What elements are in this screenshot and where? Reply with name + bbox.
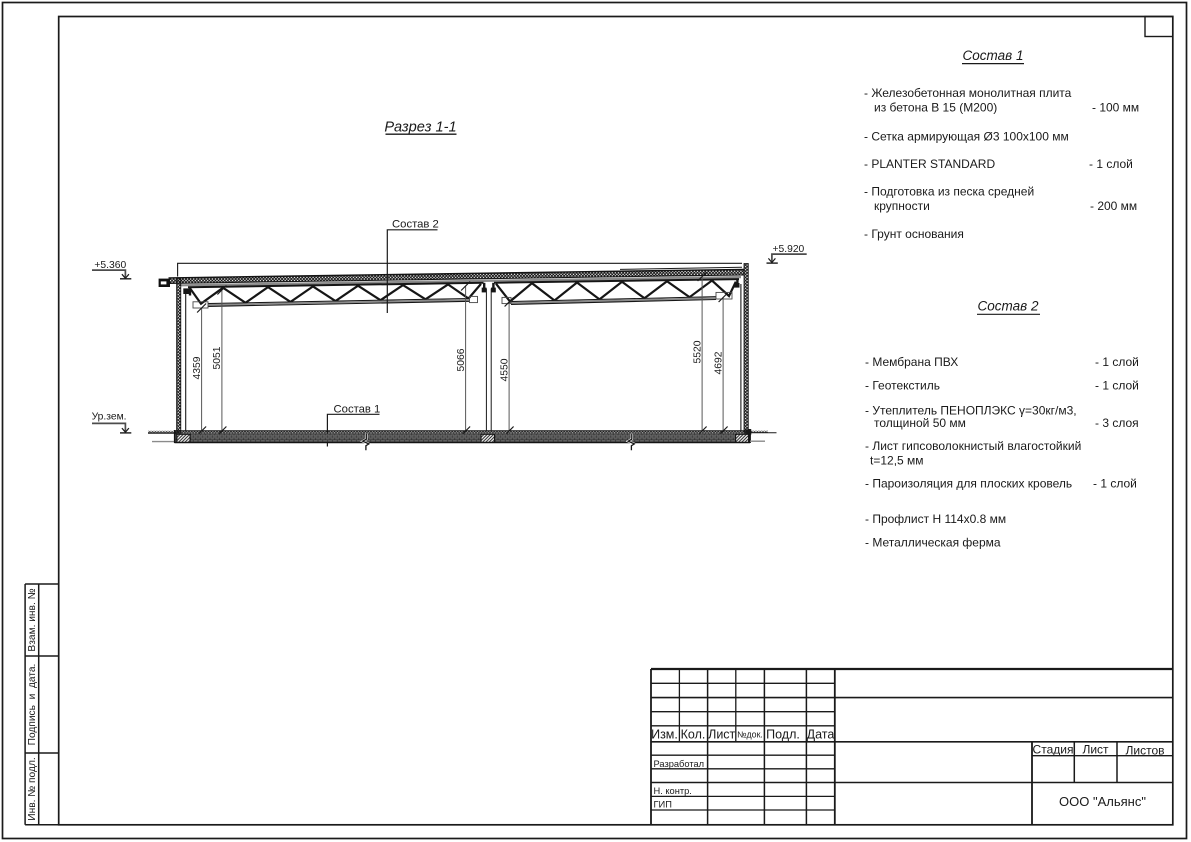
- svg-text:- Грунт основания: - Грунт основания: [864, 227, 964, 241]
- svg-text:из бетона В 15 (М200): из бетона В 15 (М200): [874, 101, 997, 115]
- svg-text:№док.: №док.: [737, 730, 763, 740]
- svg-text:- 1 слой: - 1 слой: [1093, 477, 1137, 491]
- svg-text:- PLANTER STANDARD: - PLANTER STANDARD: [864, 157, 995, 171]
- svg-text:- Геотекстиль: - Геотекстиль: [865, 379, 940, 393]
- svg-text:Подпись и дата.: Подпись и дата.: [27, 664, 38, 746]
- svg-text:+5.360: +5.360: [94, 260, 126, 271]
- svg-text:- Подготовка из песка средней: - Подготовка из песка средней: [864, 185, 1034, 199]
- svg-text:- Лист гипсоволокнистый влагос: - Лист гипсоволокнистый влагостойкий: [865, 439, 1081, 453]
- svg-text:t=12,5 мм: t=12,5 мм: [870, 454, 924, 468]
- svg-text:Разработал: Разработал: [654, 759, 705, 769]
- svg-text:- 3 слоя: - 3 слоя: [1095, 416, 1139, 430]
- svg-text:- Сетка армирующая Ø3 100х100: - Сетка армирующая Ø3 100х100 мм: [864, 130, 1069, 144]
- svg-text:- Металлическая ферма: - Металлическая ферма: [865, 536, 1001, 550]
- svg-text:толщиной 50 мм: толщиной 50 мм: [874, 416, 966, 430]
- svg-text:Изм.: Изм.: [651, 728, 678, 742]
- svg-text:ГИП: ГИП: [654, 800, 672, 810]
- svg-text:4550: 4550: [499, 358, 510, 381]
- svg-text:- Профлист Н 114х0.8 мм: - Профлист Н 114х0.8 мм: [865, 512, 1006, 526]
- svg-text:- 100 мм: - 100 мм: [1092, 101, 1139, 115]
- svg-text:Кол.: Кол.: [681, 728, 706, 742]
- svg-text:Стадия: Стадия: [1033, 743, 1074, 757]
- svg-text:Дата: Дата: [807, 728, 835, 742]
- svg-text:Листов: Листов: [1126, 744, 1165, 758]
- svg-text:Состав 1: Состав 1: [334, 403, 381, 415]
- svg-text:- 1 слой: - 1 слой: [1089, 157, 1133, 171]
- svg-text:Лист: Лист: [1082, 743, 1109, 757]
- svg-text:Состав 2: Состав 2: [392, 219, 439, 231]
- svg-text:Подл.: Подл.: [766, 728, 800, 742]
- svg-text:4359: 4359: [192, 356, 203, 379]
- svg-text:Инв. № подл.: Инв. № подл.: [27, 757, 38, 820]
- svg-text:5520: 5520: [692, 340, 703, 363]
- svg-text:крупности: крупности: [874, 199, 930, 213]
- svg-text:- 1 слой: - 1 слой: [1095, 355, 1139, 369]
- svg-text:Н. контр.: Н. контр.: [654, 786, 692, 796]
- svg-text:5051: 5051: [212, 346, 223, 369]
- svg-text:Разрез 1-1: Разрез 1-1: [384, 119, 456, 135]
- svg-text:Лист: Лист: [708, 728, 735, 742]
- svg-text:- 200 мм: - 200 мм: [1090, 199, 1137, 213]
- svg-text:- 1 слой: - 1 слой: [1095, 379, 1139, 393]
- svg-text:Состав 2: Состав 2: [978, 299, 1039, 314]
- svg-text:+5.920: +5.920: [773, 244, 805, 255]
- svg-text:ООО "Альянс": ООО "Альянс": [1059, 794, 1146, 809]
- svg-text:Ур.зем.: Ур.зем.: [92, 411, 127, 422]
- svg-text:5066: 5066: [456, 348, 467, 371]
- svg-text:Взам. инв. №: Взам. инв. №: [27, 588, 38, 651]
- svg-text:- Мембрана ПВХ: - Мембрана ПВХ: [865, 355, 958, 369]
- svg-text:Состав 1: Состав 1: [963, 48, 1024, 63]
- svg-text:4692: 4692: [713, 351, 724, 374]
- svg-text:- Пароизоляция для плоских кро: - Пароизоляция для плоских кровель: [865, 477, 1072, 491]
- svg-text:- Железобетонная монолитная п: - Железобетонная монолитная плита: [864, 86, 1072, 100]
